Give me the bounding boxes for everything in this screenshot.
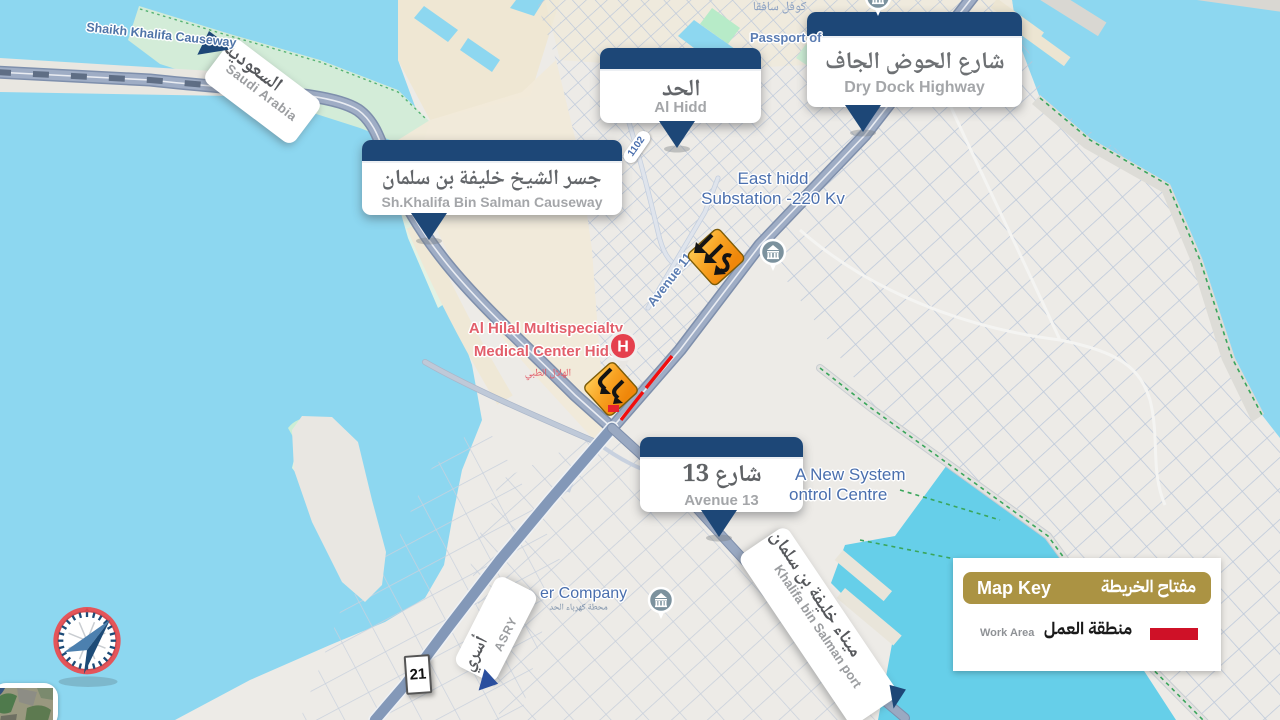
svg-text:H: H bbox=[617, 339, 629, 356]
